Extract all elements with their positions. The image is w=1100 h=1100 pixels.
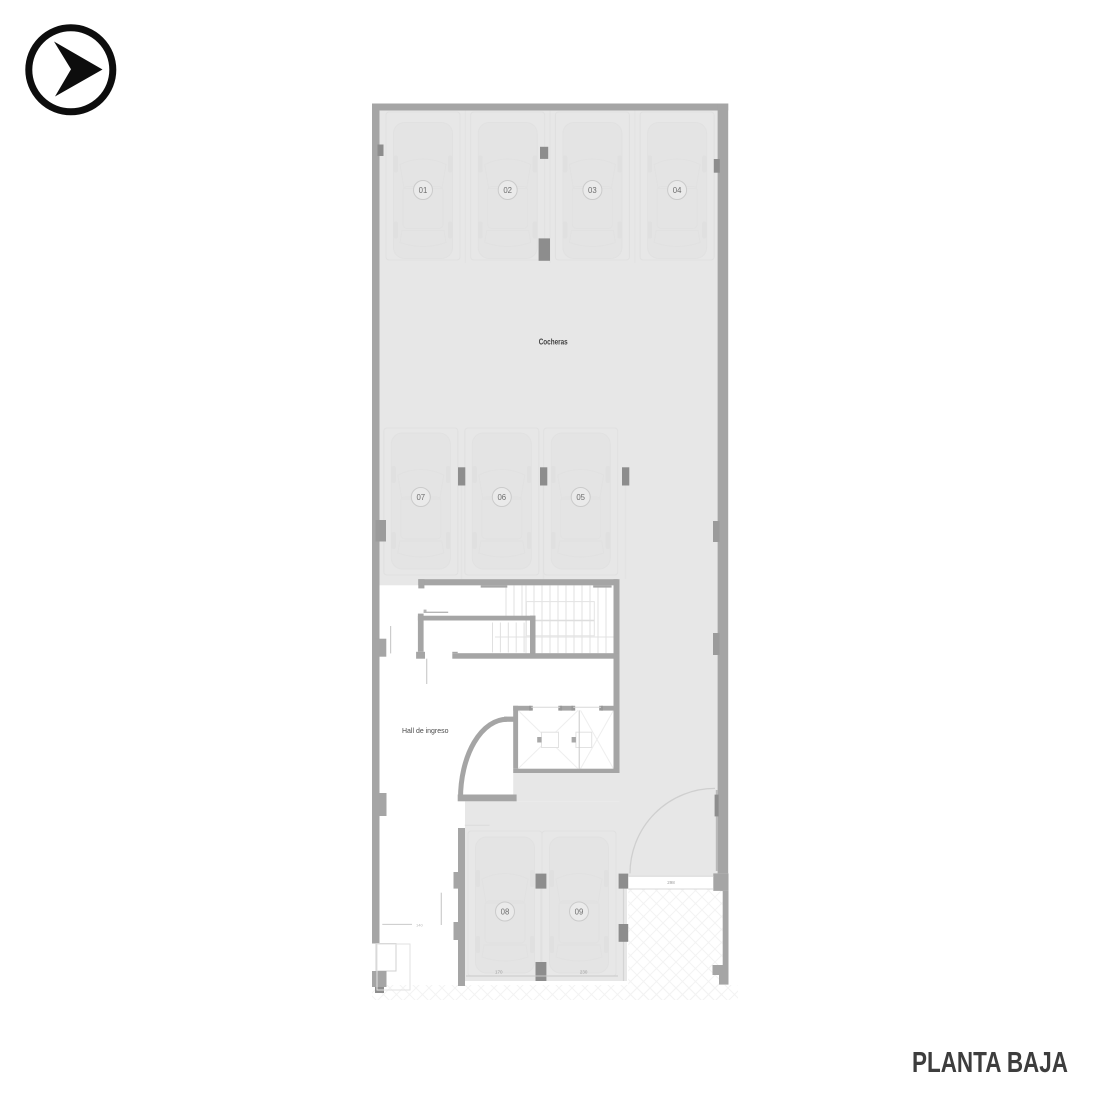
svg-text:170: 170 xyxy=(495,970,503,975)
svg-text:02: 02 xyxy=(503,186,512,195)
svg-text:04: 04 xyxy=(673,186,682,195)
svg-text:03: 03 xyxy=(588,186,597,195)
svg-text:PLANTA BAJA: PLANTA BAJA xyxy=(912,1047,1068,1079)
svg-text:230: 230 xyxy=(580,970,588,975)
svg-text:05: 05 xyxy=(576,493,585,502)
svg-text:07: 07 xyxy=(416,493,425,502)
svg-text:140: 140 xyxy=(416,923,423,928)
svg-text:08: 08 xyxy=(501,907,510,916)
svg-text:06: 06 xyxy=(497,493,506,502)
svg-text:Cocheras: Cocheras xyxy=(539,337,568,346)
svg-text:09: 09 xyxy=(575,907,584,916)
svg-text:298: 298 xyxy=(667,880,675,885)
svg-text:Hall de ingreso: Hall de ingreso xyxy=(402,726,449,735)
svg-text:01: 01 xyxy=(419,186,428,195)
